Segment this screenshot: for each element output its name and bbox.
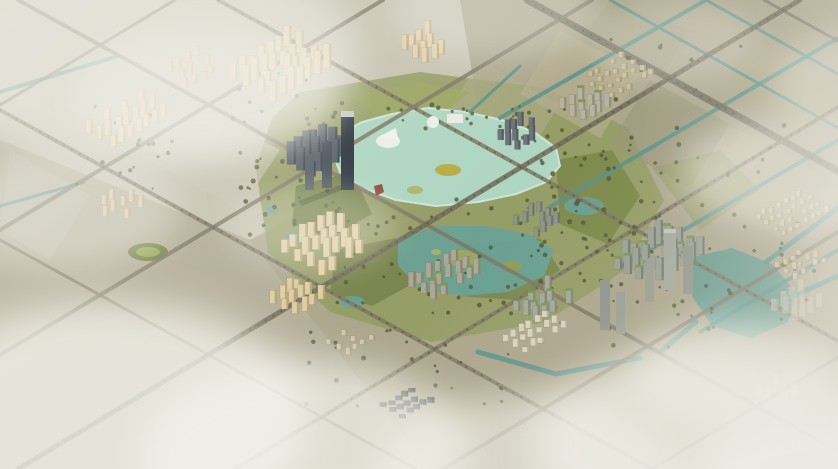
green-roof [663, 223, 671, 226]
tree [696, 156, 699, 159]
tree [423, 126, 427, 130]
tree [262, 223, 266, 227]
building-shade-side [808, 217, 810, 222]
tree [500, 400, 503, 403]
tree [548, 109, 552, 113]
tree [726, 172, 731, 177]
tree [152, 187, 154, 189]
tree [166, 151, 170, 155]
building-shade-side [478, 259, 480, 274]
tree [433, 383, 437, 387]
building-shade-side [774, 216, 776, 221]
tree [545, 134, 549, 138]
tree [727, 288, 731, 292]
building-shade-side [205, 72, 207, 79]
tree [390, 262, 394, 266]
tree [367, 223, 370, 226]
building-shade-side [817, 259, 819, 266]
tree [382, 275, 385, 278]
tree [782, 123, 787, 128]
tree [147, 143, 151, 147]
tree [630, 136, 634, 140]
building-shade-side [338, 236, 340, 252]
building-shade-side [527, 211, 529, 222]
city-aerial-master-plan-render [0, 0, 838, 469]
building-shade-side [115, 135, 117, 146]
tree [460, 361, 463, 364]
building-shade-side [196, 74, 198, 83]
building-shade-side [294, 141, 296, 164]
building-shade-side [677, 248, 679, 271]
building-shade-side [341, 344, 343, 350]
tree [237, 87, 241, 91]
tree [430, 216, 433, 219]
tree [700, 203, 704, 207]
tree [132, 166, 135, 169]
building-shade-side [547, 311, 549, 317]
tree [376, 224, 380, 228]
building-shade-side [281, 36, 283, 51]
building-shade-side [540, 315, 542, 322]
building-shade-side [101, 125, 103, 139]
tree [611, 343, 616, 348]
building-shade-side [414, 35, 416, 46]
tree [434, 365, 437, 368]
building-shade-side [385, 402, 387, 406]
building-shade-side [142, 118, 144, 131]
tree [170, 139, 174, 143]
building-shade-side [575, 105, 577, 117]
building-shade-side [760, 214, 762, 220]
building-shade-side [533, 126, 535, 141]
tree [457, 296, 461, 300]
tree [295, 94, 299, 98]
building-shade-side [303, 67, 305, 84]
building-shade-side [123, 126, 125, 142]
building-shade-side [528, 300, 530, 315]
tree [307, 361, 311, 365]
lake-island [431, 249, 441, 255]
building-shade-side [558, 213, 560, 223]
building-shade-side [635, 68, 637, 73]
building-shade-side [303, 285, 305, 298]
building-shade-side [300, 249, 302, 261]
tree [675, 126, 680, 131]
white-hall [447, 114, 463, 123]
tree [626, 56, 630, 60]
green-roof [639, 240, 647, 243]
tree [248, 100, 252, 104]
building-shade-side [796, 262, 798, 269]
tree [298, 196, 301, 199]
building-shade-side [772, 207, 774, 212]
building-shade-side [334, 256, 336, 270]
tree [739, 45, 742, 48]
building-shade-side [186, 77, 188, 87]
east-tall-tower-1-cap [664, 229, 676, 233]
building-shade-side [427, 48, 429, 63]
tree [706, 327, 710, 331]
building-shade-side [285, 76, 287, 94]
tree [660, 43, 663, 46]
building-shade-side [318, 235, 320, 250]
building-shade-side [801, 261, 803, 266]
building-shade-side [631, 84, 633, 90]
building-shade-side [612, 84, 614, 88]
building-shade-side [549, 320, 551, 327]
building-shade-side [345, 330, 347, 336]
building-shade-side [818, 202, 820, 207]
building-shade-side [792, 226, 794, 232]
tree [676, 179, 680, 183]
tree [584, 238, 587, 241]
tree [436, 106, 441, 111]
tree [507, 353, 509, 355]
building-shade-side [585, 110, 587, 119]
building-shade-side [91, 120, 93, 133]
building-shade-side [790, 209, 792, 214]
tree [611, 254, 614, 257]
building-shade-side [702, 237, 704, 255]
tree [602, 150, 605, 153]
building-shade-side [435, 284, 437, 299]
tree [454, 197, 458, 201]
tree [466, 109, 469, 112]
building-shade-side [787, 258, 789, 264]
building-shade-side [564, 97, 566, 108]
tree [275, 176, 278, 179]
green-roof [686, 236, 694, 239]
tree [260, 110, 263, 113]
building-shade-side [813, 297, 815, 313]
building-shade-side [264, 79, 266, 94]
building-shade-side [413, 388, 415, 392]
building-shade-side [373, 335, 375, 340]
tree [743, 225, 747, 229]
tree [658, 215, 661, 218]
tree [583, 156, 587, 160]
tree [259, 158, 262, 161]
building-shade-side [800, 250, 802, 255]
tree [242, 120, 246, 124]
building-shade-side [307, 296, 309, 311]
tree [595, 250, 599, 254]
tree [632, 225, 636, 229]
building-shade-side [812, 195, 814, 200]
building-shade-side [437, 44, 439, 59]
tree [680, 299, 684, 303]
tree [469, 285, 473, 289]
tree [567, 219, 572, 224]
building-shade-side [416, 397, 418, 403]
building-shade-side [791, 218, 793, 223]
tree [585, 246, 589, 250]
tree [263, 212, 268, 217]
tree [708, 247, 711, 250]
green-roof [467, 265, 474, 268]
building-shade-side [335, 225, 337, 238]
tree [450, 387, 452, 389]
tree [405, 341, 408, 344]
tree [579, 164, 583, 168]
building-shade-side [324, 260, 326, 276]
building-shade-side [566, 321, 568, 328]
white-dome [427, 116, 439, 128]
tree [344, 266, 346, 268]
tree [654, 216, 658, 220]
tree [578, 272, 581, 275]
tree [347, 220, 350, 223]
building-shade-side [418, 404, 420, 409]
tree [338, 207, 341, 210]
building-shade-side [519, 140, 521, 149]
building-shade-side [557, 315, 559, 323]
building-shade-side [509, 120, 511, 135]
tree [550, 186, 553, 189]
tree [451, 110, 454, 113]
lake-island [407, 186, 423, 194]
south-tall-tower-2 [616, 292, 625, 334]
tree [331, 114, 336, 119]
tree [309, 331, 312, 334]
building-shade-side [212, 66, 214, 73]
building-shade-side [620, 78, 622, 82]
tree [151, 141, 156, 146]
building-shade-side [535, 338, 537, 346]
tree [157, 155, 160, 158]
tree [576, 199, 581, 204]
rendered-city-scene [0, 0, 838, 469]
building-shade-side [781, 213, 783, 218]
building-shade-side [165, 104, 167, 117]
tree [543, 253, 548, 258]
tree [231, 116, 235, 120]
tree [518, 105, 520, 107]
tree [636, 300, 639, 303]
tree [780, 253, 784, 257]
tree [525, 199, 529, 203]
tree [752, 249, 756, 253]
green-roof [578, 100, 585, 103]
building-shade-side [400, 396, 402, 401]
tree [639, 199, 644, 204]
building-shade-side [329, 44, 331, 68]
tree [779, 247, 782, 250]
green-roof [542, 303, 549, 306]
tree [672, 304, 676, 308]
tree [581, 220, 586, 225]
building-shade-side [817, 250, 819, 257]
building-shade-side [762, 382, 764, 397]
tree [400, 108, 404, 112]
building-shade-side [797, 273, 799, 280]
tree [251, 179, 256, 184]
tree [612, 300, 614, 302]
building-shade-side [355, 336, 357, 342]
building-shade-side [462, 272, 464, 283]
building-shade-side [286, 299, 288, 309]
tree [408, 226, 412, 230]
tree [667, 346, 670, 349]
tree [509, 311, 513, 315]
tree [291, 203, 295, 207]
building-shade-side [617, 69, 619, 74]
building-shade-side [825, 258, 827, 262]
tree [583, 279, 587, 283]
tree [249, 188, 251, 190]
building-shade-side [795, 195, 797, 200]
building-shade-side [515, 119, 517, 129]
building-shade-side [765, 208, 767, 215]
building-shade-side [805, 268, 807, 273]
building-shade-side [157, 110, 159, 121]
building-shade-side [603, 85, 605, 90]
building-shade-side [530, 320, 532, 328]
tree [780, 242, 784, 246]
building-shade-side [654, 227, 656, 248]
green-roof [531, 300, 538, 303]
building-shade-side [314, 294, 316, 305]
building-shade-side [518, 339, 520, 347]
tree [619, 221, 623, 225]
building-shade-side [356, 344, 358, 349]
building-shade-side [361, 240, 363, 254]
building-shade-side [662, 258, 664, 281]
tree [501, 301, 506, 306]
building-shade-side [622, 87, 624, 93]
tree [446, 311, 450, 315]
building-shade-side [784, 220, 786, 226]
building-shade-side [788, 269, 790, 273]
tree [267, 196, 271, 200]
tree [606, 167, 611, 172]
tree [660, 172, 663, 175]
tree [336, 301, 340, 305]
building-shade-side [450, 264, 452, 277]
east-tall-tower-1 [664, 232, 676, 290]
tree [119, 171, 122, 174]
building-shade-side [809, 253, 811, 260]
tree [483, 402, 486, 405]
building-shade-side [402, 404, 404, 410]
building-shade-side [248, 65, 250, 86]
tree [689, 58, 693, 62]
tree [604, 233, 608, 237]
tree [608, 238, 612, 242]
tree [298, 178, 302, 182]
tree [238, 151, 242, 155]
tree [362, 265, 366, 269]
building-shade-side [412, 408, 414, 413]
building-shade-side [795, 256, 797, 261]
tree [477, 303, 482, 308]
building-shade-side [789, 390, 791, 402]
building-shade-side [107, 206, 109, 217]
tree [710, 307, 714, 311]
building-shade-side [330, 339, 332, 344]
building-shade-side [350, 347, 352, 354]
building-shade-side [779, 262, 781, 267]
building-shade-side [275, 81, 277, 102]
building-shade-side [778, 374, 780, 385]
tree [550, 171, 555, 176]
tree [653, 161, 657, 165]
building-shade-side [797, 301, 799, 320]
building-shade-side [426, 283, 428, 294]
tree [761, 158, 765, 162]
building-shade-side [545, 221, 547, 232]
building-shade-side [630, 253, 632, 274]
tree [324, 204, 328, 208]
building-shade-side [310, 57, 312, 78]
tree [272, 205, 277, 210]
tree [695, 89, 697, 91]
tree [499, 386, 503, 390]
building-shade-side [694, 242, 696, 262]
tree [485, 116, 488, 119]
tree [640, 180, 643, 183]
building-shade-side [431, 263, 433, 278]
tree [385, 329, 388, 332]
building-shade-side [551, 216, 553, 226]
tree [374, 232, 378, 236]
building-shade-side [404, 414, 406, 418]
building-shade-side [191, 62, 193, 71]
tree [553, 207, 557, 211]
building-shade-side [128, 107, 130, 125]
building-shade-side [133, 190, 135, 201]
building-shade-side [509, 133, 511, 145]
building-shade-side [235, 62, 237, 80]
tree [756, 170, 760, 174]
building-shade-side [320, 51, 322, 73]
green-roof [677, 242, 685, 245]
building-shade-side [208, 55, 210, 64]
building-shade-side [805, 303, 807, 317]
building-shade-side [613, 93, 615, 98]
building-shade-side [822, 293, 824, 308]
tree [506, 285, 510, 289]
building-shade-side [257, 57, 259, 81]
building-shade-side [310, 282, 312, 295]
tree [540, 161, 544, 165]
building-shade-side [297, 302, 299, 314]
building-shade-side [799, 223, 801, 228]
tree [659, 286, 662, 289]
tree [600, 153, 604, 157]
tree [254, 165, 259, 170]
building-shade-side [592, 95, 594, 107]
building-shade-side [460, 260, 462, 274]
building-shade-side [777, 299, 779, 311]
tree [255, 159, 259, 163]
tree [614, 97, 619, 102]
tree [677, 313, 680, 316]
building-shade-side [125, 196, 127, 206]
building-shade-side [815, 213, 817, 218]
tree [489, 299, 492, 302]
tree [436, 370, 439, 373]
building-shade-side [592, 71, 594, 76]
building-shade-side [154, 94, 156, 109]
building-shade-side [432, 397, 434, 403]
building-shade-side [541, 327, 543, 332]
tree [280, 159, 285, 164]
green-roof [614, 256, 622, 259]
tree [489, 206, 494, 211]
tree [560, 128, 564, 132]
building-shade-side [652, 69, 654, 75]
